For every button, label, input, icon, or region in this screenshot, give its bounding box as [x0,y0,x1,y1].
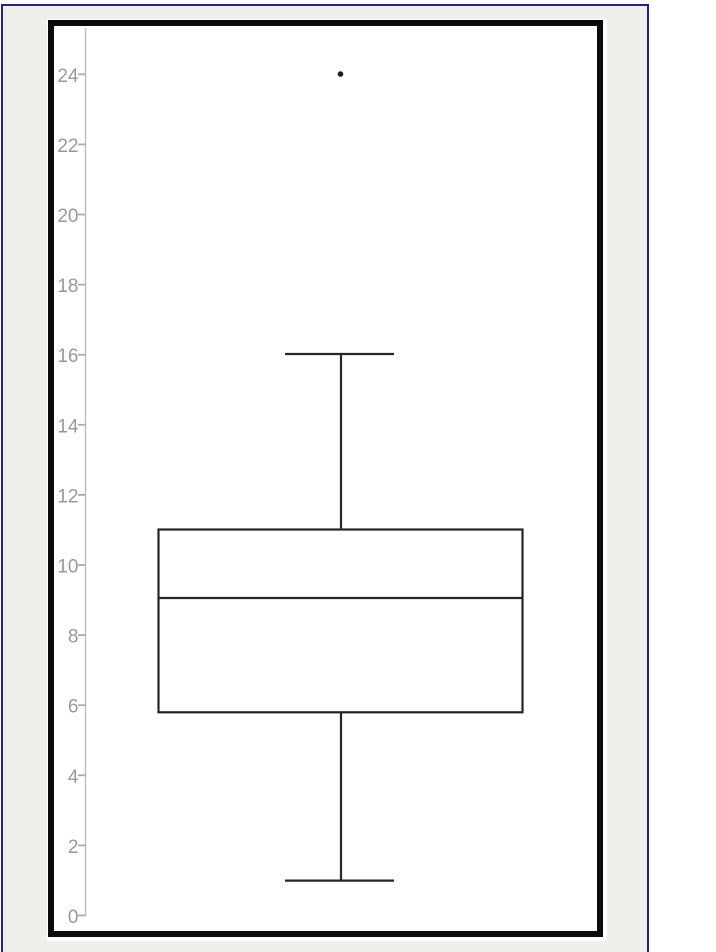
svg-text:2: 2 [68,837,79,858]
svg-text:16: 16 [57,346,78,367]
svg-text:24: 24 [57,66,79,87]
svg-text:18: 18 [57,276,78,297]
svg-text:14: 14 [57,416,79,437]
svg-text:0: 0 [68,907,79,928]
svg-text:12: 12 [57,486,78,507]
svg-text:10: 10 [57,557,78,578]
svg-text:22: 22 [57,136,78,157]
svg-text:20: 20 [57,206,78,227]
svg-text:8: 8 [68,627,79,648]
svg-text:6: 6 [68,697,79,718]
svg-text:4: 4 [68,767,79,788]
